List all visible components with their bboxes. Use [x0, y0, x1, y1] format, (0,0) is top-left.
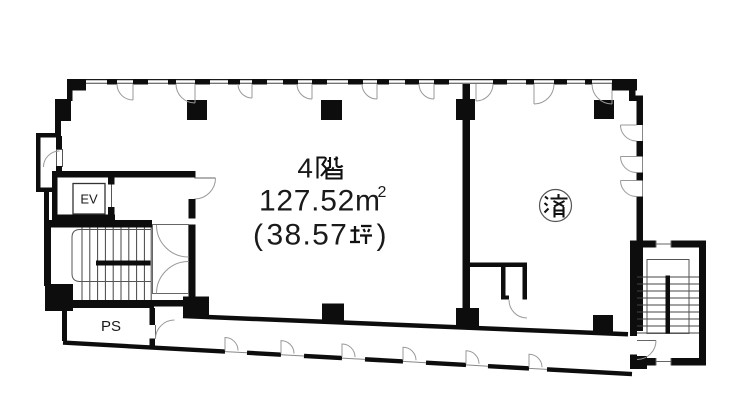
svg-text:127.52m: 127.52m	[259, 185, 381, 218]
svg-text:): )	[377, 219, 387, 252]
svg-text:2: 2	[378, 184, 387, 201]
svg-text:4: 4	[297, 153, 313, 184]
svg-text:38.57: 38.57	[267, 219, 349, 252]
svg-text:PS: PS	[101, 318, 121, 335]
svg-text:(: (	[253, 219, 263, 252]
svg-text:EV: EV	[80, 192, 98, 207]
